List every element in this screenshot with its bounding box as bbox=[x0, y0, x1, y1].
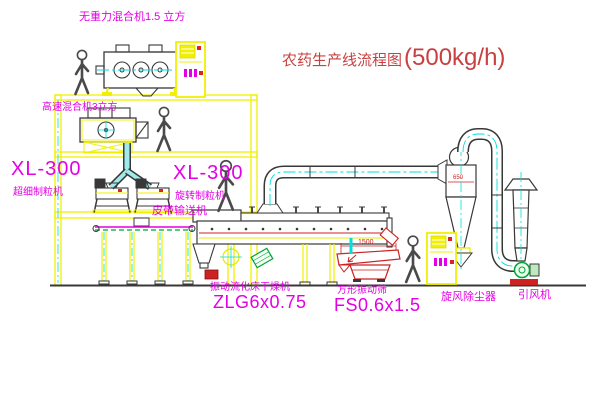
person-figure bbox=[158, 107, 171, 151]
label-high-speed-mixer: 高速混合机3立方 bbox=[42, 103, 118, 113]
exhaust-duct bbox=[270, 166, 446, 207]
label-xl300-left: XL-300 bbox=[11, 159, 82, 179]
person-figure bbox=[76, 50, 89, 94]
control-cabinet-b bbox=[427, 233, 456, 284]
label-fan: 引风机 bbox=[518, 290, 551, 301]
label-granulator-mid: 旋转制粒机 bbox=[175, 192, 225, 202]
drawing-title: 农药生产线流程图 (500kg/h) bbox=[282, 44, 505, 72]
title-capacity: (500kg/h) bbox=[404, 44, 505, 72]
dryer-vibrator bbox=[205, 270, 218, 279]
conveyor-legs bbox=[99, 232, 193, 284]
label-granulator-left: 超细制粒机 bbox=[13, 188, 63, 198]
label-gravity-free-mixer: 无重力混合机1.5 立方 bbox=[79, 12, 185, 23]
high-speed-mixer bbox=[80, 108, 148, 142]
label-dryer-model: ZLG6x0.75 bbox=[213, 293, 307, 311]
label-belt-conveyor: 皮带输送机 bbox=[152, 206, 207, 217]
level-crosshair bbox=[220, 246, 242, 268]
person-figure bbox=[406, 236, 419, 282]
belt-conveyor bbox=[93, 218, 195, 232]
mixer-paddle-centerline bbox=[97, 121, 115, 139]
label-xl300-mid: XL-300 bbox=[173, 163, 244, 183]
dryer-legs bbox=[300, 244, 337, 285]
label-cyclone: 旋风除尘器 bbox=[441, 292, 496, 303]
indicator-dot bbox=[448, 237, 452, 241]
square-sieve bbox=[337, 243, 400, 279]
fan-base bbox=[510, 279, 538, 285]
sieve-foot bbox=[353, 279, 361, 282]
conveyor-feed-chute bbox=[134, 218, 149, 226]
label-sieve-model: FS0.6x1.5 bbox=[334, 296, 421, 314]
title-chinese: 农药生产线流程图 bbox=[282, 49, 402, 70]
indicator-dot bbox=[199, 71, 203, 75]
process-flow-drawing: 农药生产线流程图 (500kg/h) 无重力混合机1.5 立方 高速混合机3立方… bbox=[0, 0, 600, 403]
roof-slab bbox=[55, 95, 257, 100]
dim-sieve-1500: 1500 bbox=[358, 239, 374, 246]
sieve-foot bbox=[377, 279, 385, 282]
dim-cyclone-650: 650 bbox=[453, 175, 463, 181]
green-barrel bbox=[251, 248, 273, 267]
indicator-dot bbox=[450, 260, 454, 264]
control-cabinet-a bbox=[176, 42, 205, 97]
indicator-dot bbox=[197, 46, 201, 50]
